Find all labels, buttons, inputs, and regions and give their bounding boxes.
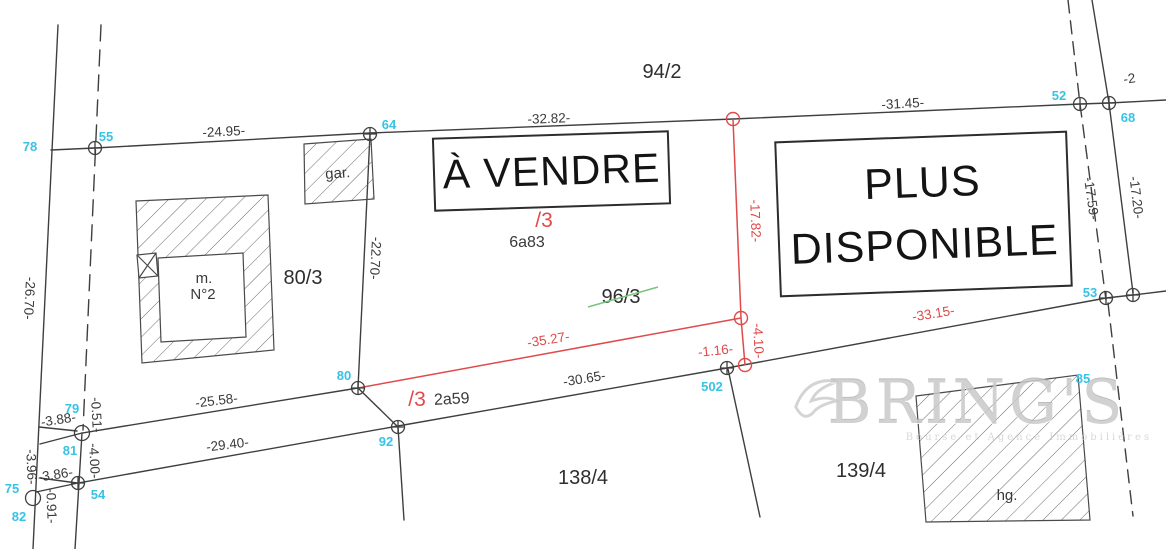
a-vendre-sign: À VENDRE (432, 130, 671, 211)
building-label: gar. (325, 164, 351, 183)
survey-point-label: 79 (65, 401, 79, 416)
red-south-line (358, 318, 741, 388)
red-east-line (733, 119, 745, 365)
area-values: 6a832a59 (434, 234, 545, 409)
building-label: N°2 (190, 286, 215, 303)
survey-point-label: 75 (5, 481, 19, 496)
area-value-label: 6a83 (509, 234, 545, 251)
lot-number-label: /3 (535, 209, 553, 232)
survey-point-label: 55 (99, 129, 113, 144)
measurement-label: -2 (1122, 70, 1136, 87)
measurement-label: -31.45- (881, 95, 925, 112)
survey-point-label: 82 (12, 509, 26, 524)
measurement-label: -4.00- (86, 443, 103, 479)
point80-92-connector-line (358, 388, 398, 427)
measurement-label: -0.91- (43, 488, 59, 524)
survey-point-label: 80 (337, 368, 351, 383)
red-measurement-label: -4.10- (750, 323, 767, 359)
survey-point-label: 64 (382, 117, 397, 132)
plus-disponible-label: PLUS DISPONIBLE (777, 146, 1070, 281)
a-vendre-label: À VENDRE (442, 144, 661, 198)
measurement-label: -3.96- (23, 449, 39, 485)
survey-point-label: 52 (1052, 88, 1066, 103)
parcel-138-west-line (398, 427, 404, 520)
area-value-label: 2a59 (434, 390, 471, 409)
measurement-label: -17.20- (1126, 175, 1146, 219)
survey-marker-plain (26, 491, 41, 506)
parcel-number-label: 138/4 (558, 467, 608, 489)
survey-point-label: 68 (1121, 110, 1135, 125)
survey-point-label: 81 (63, 443, 77, 458)
east-lower-dashed-line (1108, 303, 1133, 516)
parcel-number-label: 80/3 (284, 267, 323, 289)
measurement-label: -22.70- (367, 236, 384, 280)
measurement-label: -24.95- (202, 123, 246, 140)
survey-point-label: 53 (1083, 285, 1097, 300)
east-upper-solid-line (1092, 0, 1109, 103)
cadastral-plan: -24.95--32.82--31.45--22.70--26.70--25.5… (0, 0, 1166, 549)
measurement-label: -25.58- (194, 390, 238, 410)
measurement-label: -17.59- (1081, 176, 1102, 220)
east-upper-dashed-line (1068, 0, 1080, 104)
lot-number-label: /3 (408, 388, 426, 411)
parcel-138-139-divider-line (728, 369, 760, 517)
survey-point-label: 92 (379, 434, 393, 449)
measurement-label: -29.40- (205, 434, 249, 454)
measurement-label: -0.51- (88, 397, 105, 433)
red-measurement-label: -35.27- (526, 329, 571, 351)
measurement-label: -32.82- (527, 110, 570, 126)
parcel-number-label: 94/2 (643, 61, 682, 83)
red-measurement-label: -17.82- (747, 199, 763, 242)
building-label: m. (196, 270, 213, 287)
measurement-label: -30.65- (562, 368, 607, 390)
survey-point-label: 54 (91, 487, 106, 502)
red-measurement-label: -1.16- (697, 341, 734, 360)
building-label: hg. (997, 487, 1018, 504)
west-dashed-line (83, 25, 101, 430)
survey-point-label: 78 (23, 139, 37, 154)
measurement-label: -26.70- (21, 276, 38, 320)
plus-disponible-sign: PLUS DISPONIBLE (774, 131, 1073, 298)
parcel-number-label: 139/4 (836, 460, 886, 482)
red-measurement-label: -33.15- (911, 303, 956, 325)
survey-point-label: 502 (701, 379, 723, 394)
survey-point-label: 85 (1076, 371, 1090, 386)
